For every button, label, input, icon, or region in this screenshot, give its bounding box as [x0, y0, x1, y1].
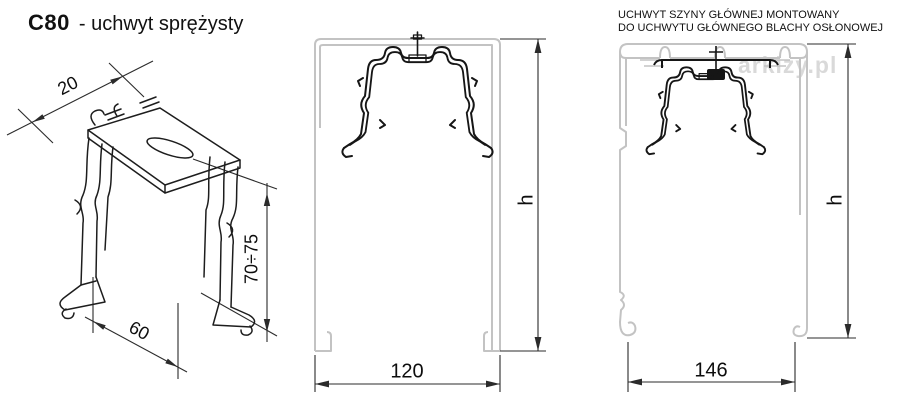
right-view-title: UCHWYT SZYNY GŁÓWNEJ MONTOWANY DO UCHWYT… [618, 9, 900, 35]
spring-clip-isometric [60, 97, 255, 335]
rail-bracket [654, 46, 778, 79]
extrusion-profile [620, 44, 807, 336]
dim-label-h-right: h [825, 194, 848, 205]
iso-dimension-arrows [32, 76, 270, 367]
iso-view-drawing [5, 45, 295, 400]
right-view-title-line1: UCHWYT SZYNY GŁÓWNEJ MONTOWANY [618, 9, 900, 22]
dim-label-120: 120 [390, 361, 423, 384]
dim-label-146: 146 [694, 360, 727, 383]
dim-label-h-middle: h [516, 194, 539, 205]
dim-label-70-75: 70÷75 [242, 234, 263, 284]
right-view-title-line2: DO UCHWYTU GŁÓWNEGO BLACHY OSŁONOWEJ [618, 22, 900, 35]
middle-dimension-arrows [315, 39, 541, 387]
page-title: C80 - uchwyt sprężysty [28, 10, 243, 36]
middle-dimension-lines [315, 39, 546, 392]
product-code: C80 [28, 10, 70, 36]
right-dimension-arrows [628, 44, 851, 385]
diagram-canvas: C80 - uchwyt sprężysty UCHWYT SZYNY GŁÓW… [0, 0, 900, 400]
middle-section-drawing [295, 18, 565, 400]
channel-profile [315, 39, 500, 351]
right-section-drawing [610, 30, 900, 400]
spring-clip-section [342, 32, 492, 157]
product-name: - uchwyt sprężysty [79, 13, 243, 36]
spring-clip-section-right [646, 67, 765, 154]
